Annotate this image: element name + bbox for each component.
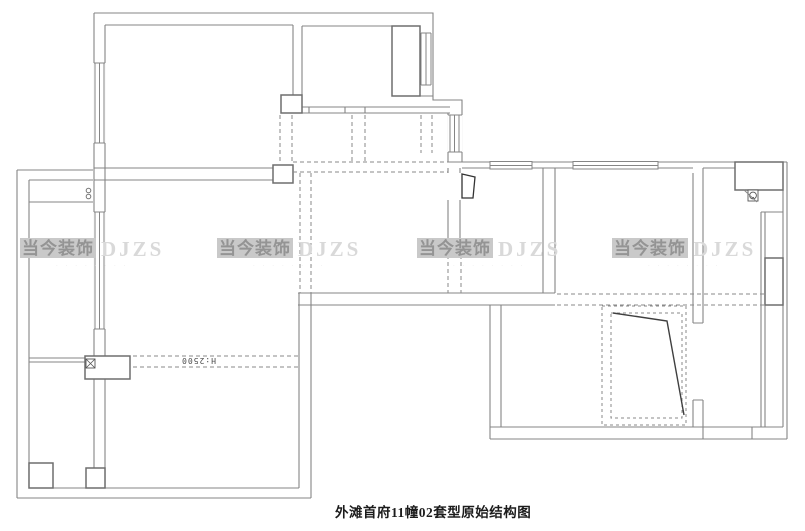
beam-top-hall-verticals <box>280 115 432 162</box>
beam-hall-horizontal <box>293 162 448 172</box>
beam-living-verticals <box>300 173 461 293</box>
watermark-brand-cn: 当今装饰 <box>612 238 688 258</box>
column-block <box>281 95 302 113</box>
watermark-brand-cn: 当今装饰 <box>20 238 96 258</box>
bottom-right-wall <box>490 427 787 439</box>
watermark-brand-cn: 当今装饰 <box>417 238 493 258</box>
sloped-wall-line <box>613 313 684 415</box>
watermark-subtext: · · · · · · · · <box>417 263 561 269</box>
shaft-block <box>765 258 783 305</box>
watermark-subtext: · · · · · · · · <box>20 263 164 269</box>
watermark: 当今装饰DJZS · · · · · · · · <box>417 238 561 269</box>
sink-circle-1 <box>86 188 91 193</box>
watermark-brand-en: DJZS <box>693 239 756 260</box>
entry-viewer-symbol <box>744 190 758 202</box>
notch-top-wall <box>298 293 555 305</box>
windows <box>94 33 659 329</box>
watermark-subtext: · · · · · · · · <box>612 263 756 269</box>
top-left-room-bottom-wall <box>94 168 273 180</box>
watermark: 当今装饰DJZS · · · · · · · · <box>612 238 756 269</box>
bottom-left-wall <box>17 488 311 498</box>
watermark: 当今装饰DJZS · · · · · · · · <box>217 238 361 269</box>
height-annotation: H:2500 <box>181 356 216 365</box>
door-leaf-symbol <box>462 174 475 198</box>
watermark-brand-cn: 当今装饰 <box>217 238 293 258</box>
bottom-corner-block-1 <box>29 463 53 488</box>
watermark-brand-en: DJZS <box>298 239 361 260</box>
watermark-brand-en: DJZS <box>101 239 164 260</box>
drawing-caption: 外滩首府11幢02套型原始结构图 <box>335 501 531 521</box>
room-divider-wall <box>543 168 555 293</box>
floor-plan-canvas: H:2500 当今装饰DJZS · · · · · · · · 当今装饰DJZS… <box>0 0 805 531</box>
top-center-column <box>392 26 420 96</box>
dashed-zone-inner <box>611 313 682 418</box>
dashed-zone-outer <box>602 306 686 425</box>
drain-symbol <box>86 359 95 368</box>
watermark: 当今装饰DJZS · · · · · · · · <box>20 238 164 269</box>
watermark-subtext: · · · · · · · · <box>217 263 361 269</box>
hall-left-block <box>273 165 293 183</box>
right-section-wall <box>693 168 703 427</box>
entry-block <box>735 162 783 190</box>
notch-left-wall <box>299 293 311 498</box>
right-shaft <box>761 212 783 427</box>
beam-right-horizontal <box>557 294 765 305</box>
bottom-corner-block-2 <box>86 468 105 488</box>
hall-top-wall <box>281 107 450 113</box>
left-annex <box>17 170 93 498</box>
notch-right-wall <box>490 305 501 439</box>
top-left-room <box>105 25 302 95</box>
watermark-brand-en: DJZS <box>498 239 561 260</box>
sink-circle-2 <box>86 194 91 199</box>
